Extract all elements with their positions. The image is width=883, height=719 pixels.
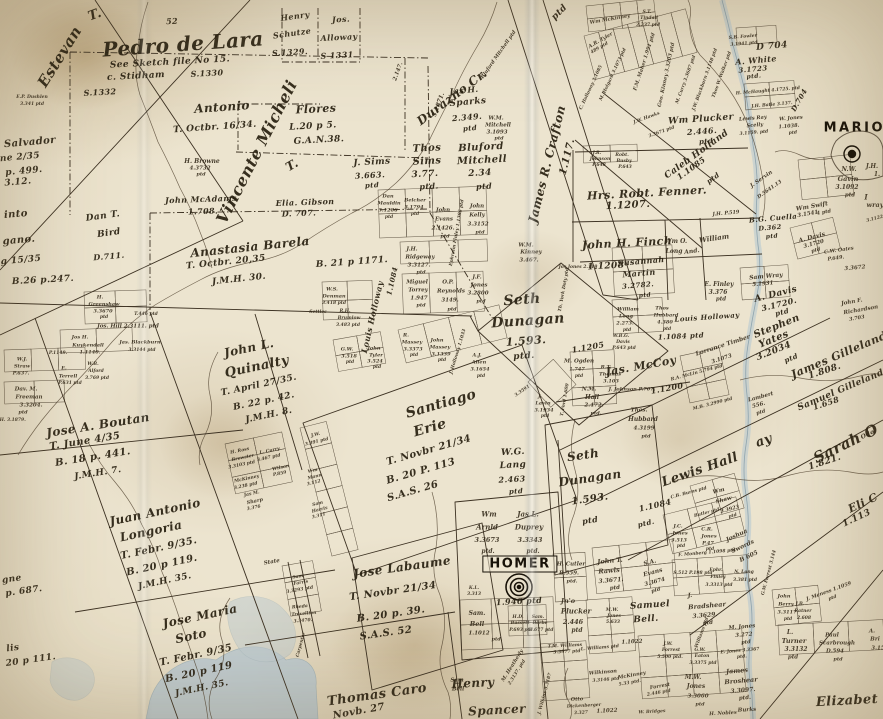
parcel-cluster: [586, 597, 636, 654]
parcel-cluster: [592, 540, 677, 594]
parcel-cluster: [4, 347, 86, 372]
parcel-cluster: [638, 629, 746, 699]
parcel-cluster: [225, 432, 292, 494]
pond: [50, 658, 94, 700]
parcel-cluster: [378, 186, 488, 238]
parcel-cluster: [790, 217, 840, 259]
parcel-cluster: [4, 380, 65, 404]
parcel-cluster: [778, 620, 883, 655]
parcel-cluster: [680, 348, 729, 403]
parcel-cluster: [663, 497, 745, 554]
stream: [722, 0, 760, 719]
parcel-cluster: [300, 421, 358, 556]
parcel-cluster: [586, 0, 656, 32]
town-marker-homer: [506, 574, 532, 600]
town-marker-marion: [844, 146, 860, 162]
pond: [146, 647, 318, 719]
parcel-cluster: [402, 271, 484, 314]
parcel-cluster: [553, 552, 587, 602]
parcel-cluster: [740, 265, 790, 300]
parcel-cluster: [798, 155, 854, 200]
parcel-cluster: [322, 280, 373, 320]
parcel-cluster: [744, 81, 796, 110]
parcel-cluster: [736, 25, 777, 45]
parcel-cluster: [672, 555, 749, 596]
map-graphics: [0, 0, 883, 719]
parcel-cluster: [333, 332, 386, 372]
parcel-cluster: [612, 297, 664, 334]
parcel-cluster: [400, 239, 488, 264]
map[interactable]: EstevanT.52Pedro de LaraSee Sketch file …: [0, 0, 883, 719]
dashed-boundaries: [70, 8, 492, 318]
marion-pond: [831, 131, 883, 180]
parcel-cluster: [584, 9, 697, 80]
parcel-cluster: [772, 585, 822, 626]
parcel-cluster: [570, 350, 617, 406]
parcel-cluster: [508, 605, 547, 636]
parcel-cluster: [612, 245, 674, 296]
